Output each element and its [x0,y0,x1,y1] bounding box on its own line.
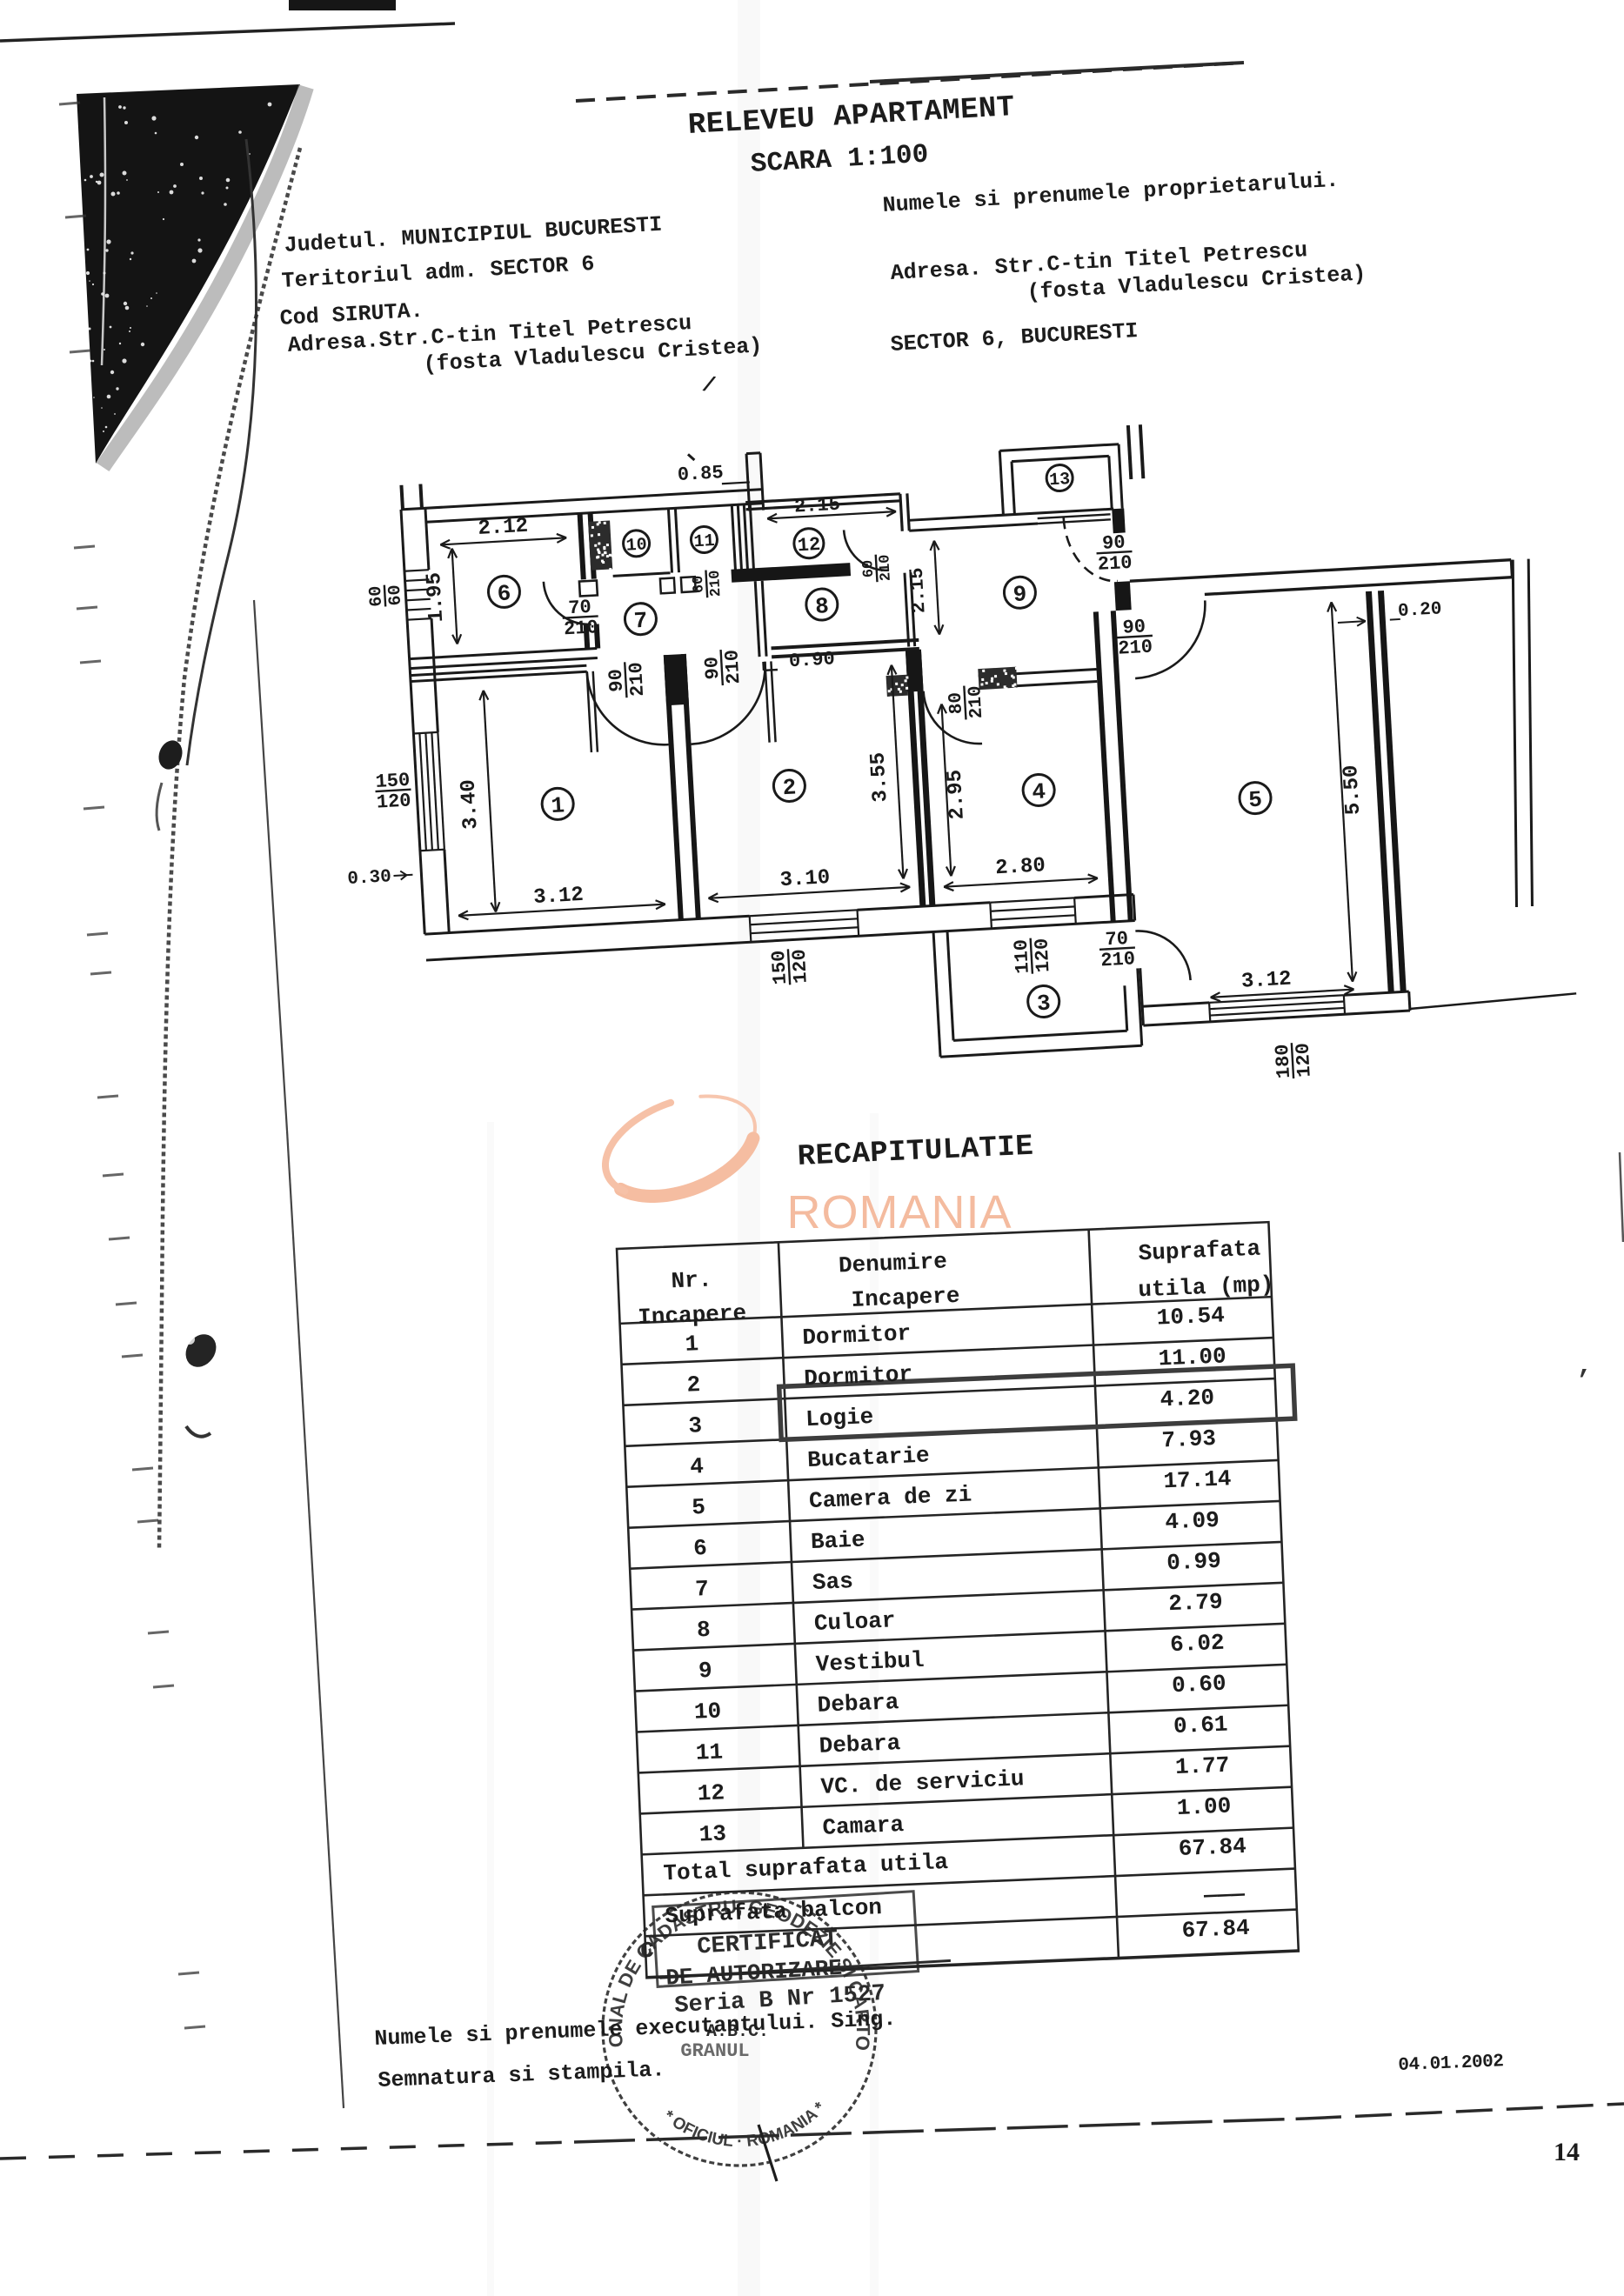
svg-text:4: 4 [1032,778,1046,805]
svg-text:3.55: 3.55 [866,751,892,803]
svg-text:12: 12 [797,534,821,557]
svg-text:2.15: 2.15 [906,567,931,614]
svg-text:5: 5 [1248,787,1263,814]
svg-text:8: 8 [814,593,829,620]
svg-text:5.50: 5.50 [1340,764,1366,816]
svg-text:2.12: 2.12 [478,515,529,541]
svg-text:1.95: 1.95 [423,571,449,623]
svg-text:10: 10 [625,535,647,556]
svg-text:3: 3 [1036,991,1051,1018]
svg-text:120: 120 [376,790,411,813]
svg-text:0.30: 0.30 [347,867,392,890]
svg-text:7: 7 [633,608,648,635]
svg-text:GRANUL: GRANUL [680,2040,749,2062]
svg-text:120: 120 [789,949,812,984]
svg-text:1: 1 [551,792,565,819]
svg-text:210: 210 [707,570,725,597]
svg-text:3.12: 3.12 [1240,968,1292,994]
svg-text:210: 210 [721,649,745,684]
svg-text:210: 210 [1118,637,1153,660]
svg-text:3.12: 3.12 [533,884,585,910]
svg-text:2.15: 2.15 [793,494,840,518]
svg-text:0.90: 0.90 [788,648,835,672]
svg-text:3.10: 3.10 [779,866,831,892]
svg-text:210: 210 [877,554,895,582]
svg-text:2.80: 2.80 [995,854,1046,880]
svg-text:210: 210 [1097,552,1133,576]
svg-text:6: 6 [497,580,511,607]
svg-text:2: 2 [782,774,797,801]
svg-text:60: 60 [385,584,406,606]
svg-text:3.40: 3.40 [457,778,483,830]
svg-text:120: 120 [1293,1042,1316,1078]
svg-text:,: , [1577,1352,1593,1381]
svg-text:120: 120 [1031,938,1054,973]
svg-text:13: 13 [1049,470,1071,491]
svg-text:ROMANIA: ROMANIA [786,1186,1012,1238]
svg-text:210: 210 [1100,948,1136,971]
svg-text:210: 210 [966,685,987,719]
svg-text:0.85: 0.85 [677,462,724,486]
svg-text:210: 210 [625,662,649,697]
svg-text:9: 9 [1012,581,1027,608]
svg-text:210: 210 [563,617,598,640]
svg-text:11: 11 [693,531,715,552]
svg-text:0.20: 0.20 [1397,599,1442,622]
svg-text:2.95: 2.95 [944,769,970,820]
